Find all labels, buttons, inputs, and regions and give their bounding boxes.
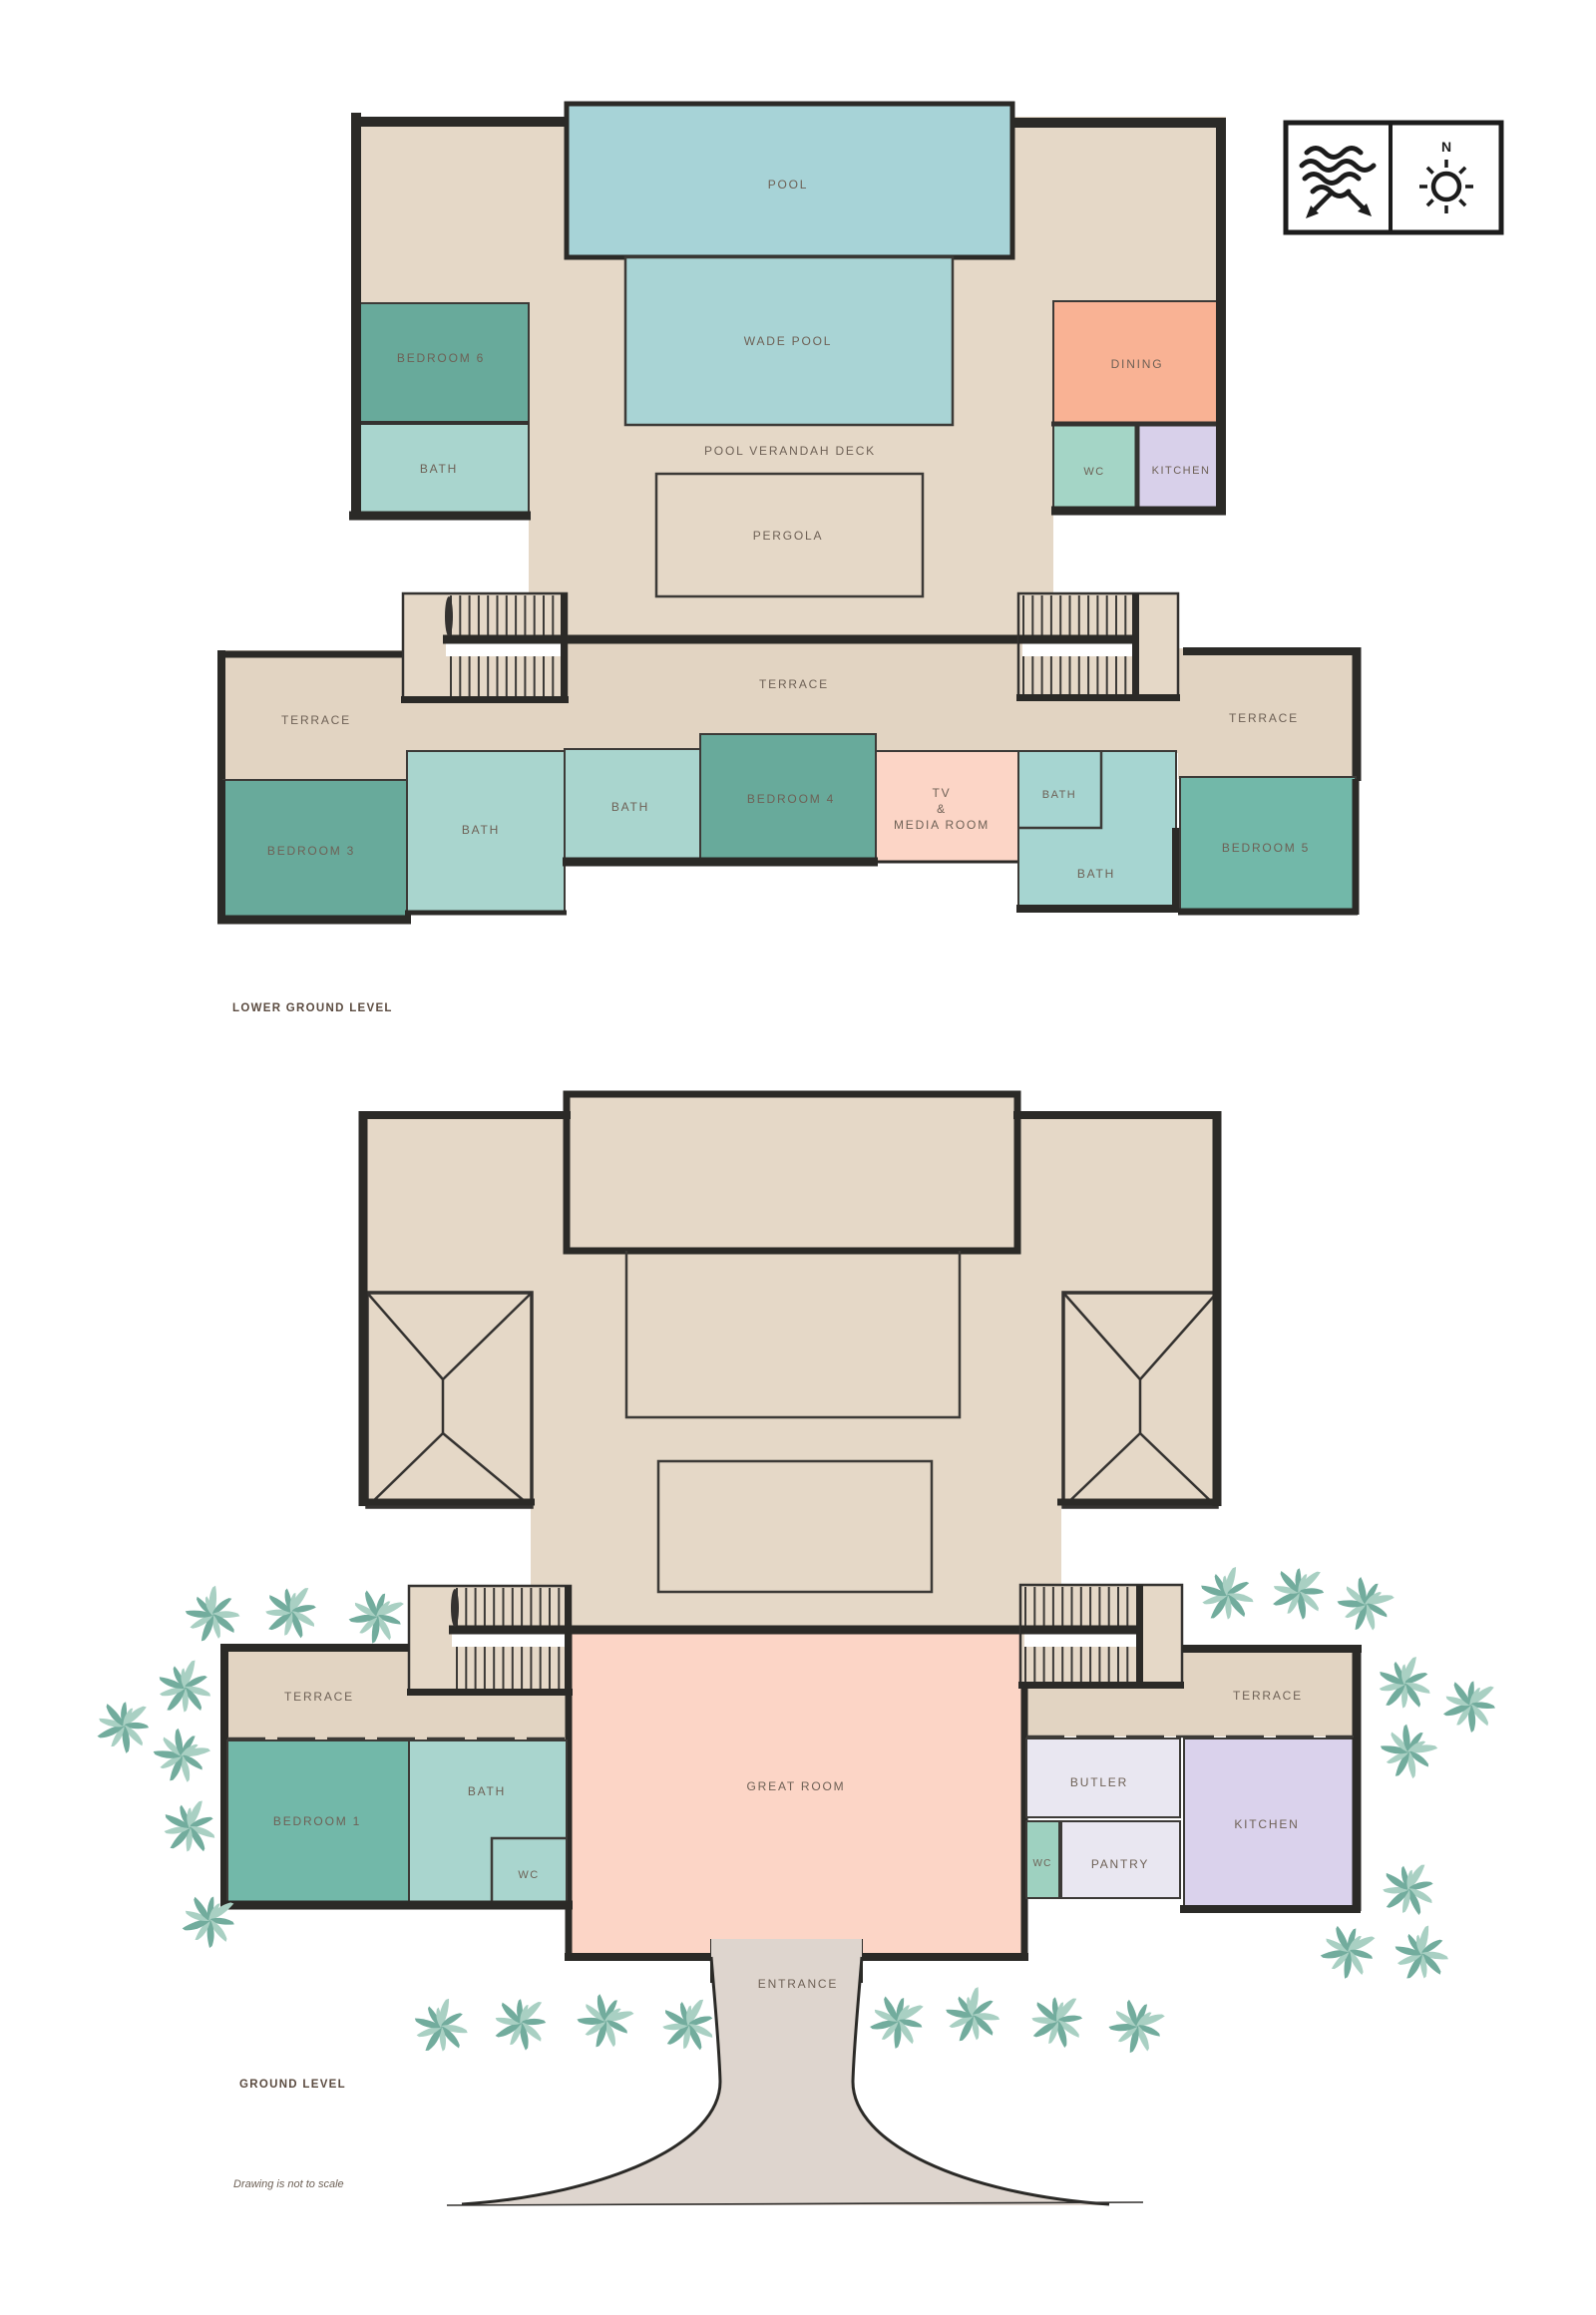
svg-text:TERRACE: TERRACE bbox=[284, 1690, 354, 1704]
svg-text:WC: WC bbox=[1083, 466, 1104, 478]
svg-text:BEDROOM 4: BEDROOM 4 bbox=[747, 792, 835, 806]
svg-text:BATH: BATH bbox=[420, 462, 458, 476]
svg-text:BEDROOM 1: BEDROOM 1 bbox=[273, 1814, 361, 1828]
svg-text:PANTRY: PANTRY bbox=[1091, 1857, 1149, 1871]
svg-text:KITCHEN: KITCHEN bbox=[1234, 1817, 1299, 1831]
svg-text:BATH: BATH bbox=[462, 823, 500, 837]
svg-text:BEDROOM 3: BEDROOM 3 bbox=[267, 844, 355, 858]
svg-text:TERRACE: TERRACE bbox=[759, 677, 829, 691]
svg-text:KITCHEN: KITCHEN bbox=[1152, 465, 1211, 477]
svg-text:Drawing is not to scale: Drawing is not to scale bbox=[233, 2178, 344, 2190]
svg-text:WC: WC bbox=[518, 1869, 539, 1881]
svg-text:BUTLER: BUTLER bbox=[1070, 1775, 1128, 1789]
svg-text:ENTRANCE: ENTRANCE bbox=[758, 1977, 838, 1991]
svg-text:BATH: BATH bbox=[468, 1784, 506, 1798]
svg-text:TERRACE: TERRACE bbox=[1229, 711, 1299, 725]
svg-text:BEDROOM 5: BEDROOM 5 bbox=[1222, 841, 1310, 855]
svg-text:LOWER GROUND LEVEL: LOWER GROUND LEVEL bbox=[232, 1002, 393, 1014]
svg-text:MEDIA ROOM: MEDIA ROOM bbox=[894, 818, 990, 832]
svg-text:BATH: BATH bbox=[1077, 867, 1115, 881]
svg-text:PERGOLA: PERGOLA bbox=[753, 529, 824, 543]
svg-text:DINING: DINING bbox=[1111, 357, 1164, 371]
svg-text:TERRACE: TERRACE bbox=[281, 713, 351, 727]
svg-text:TV: TV bbox=[933, 786, 952, 800]
svg-text:TERRACE: TERRACE bbox=[1233, 1689, 1303, 1703]
svg-text:BATH: BATH bbox=[1042, 789, 1077, 801]
svg-text:N: N bbox=[1441, 139, 1451, 155]
svg-text:WADE POOL: WADE POOL bbox=[744, 334, 832, 348]
svg-text:POOL: POOL bbox=[768, 178, 809, 192]
svg-text:WC: WC bbox=[1032, 1858, 1051, 1869]
svg-text:GREAT ROOM: GREAT ROOM bbox=[747, 1779, 846, 1793]
svg-text:&: & bbox=[937, 802, 947, 816]
svg-text:POOL VERANDAH DECK: POOL VERANDAH DECK bbox=[704, 444, 876, 458]
svg-text:GROUND LEVEL: GROUND LEVEL bbox=[239, 2079, 346, 2091]
svg-text:BEDROOM 6: BEDROOM 6 bbox=[397, 351, 485, 365]
svg-text:BATH: BATH bbox=[611, 800, 649, 814]
